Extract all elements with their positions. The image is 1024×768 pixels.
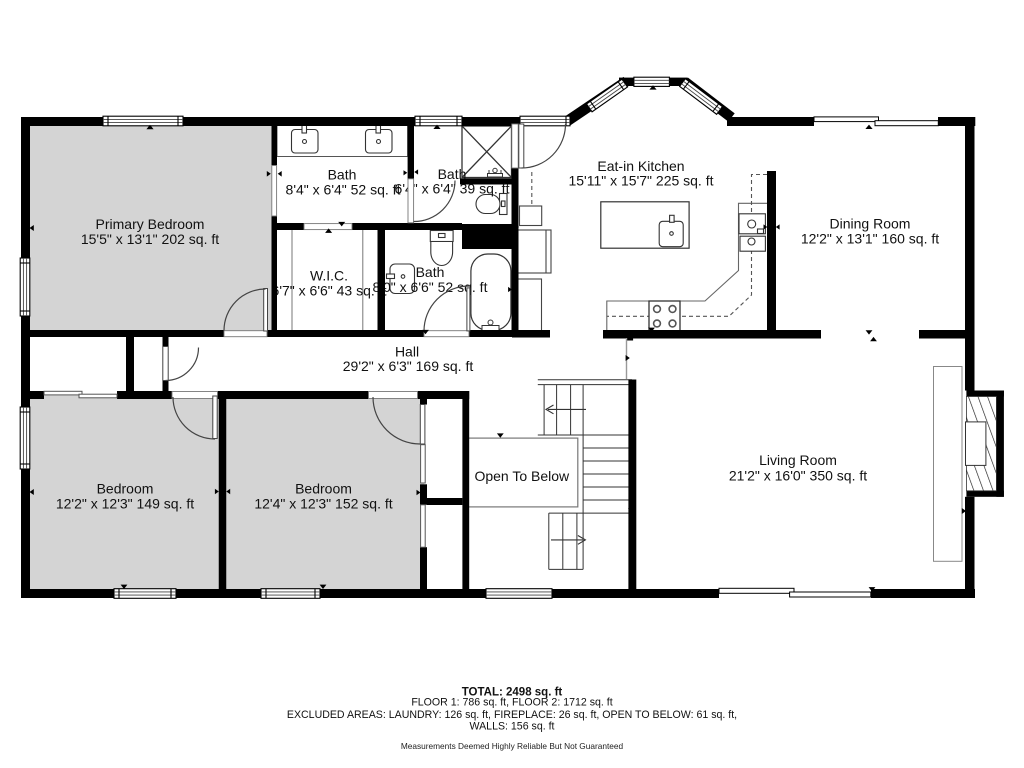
svg-text:6'7" x 6'6" 43 sq. ft: 6'7" x 6'6" 43 sq. ft (272, 283, 387, 299)
svg-text:EXCLUDED AREAS: LAUNDRY: 126 s: EXCLUDED AREAS: LAUNDRY: 126 sq. ft, FIR… (287, 709, 737, 721)
svg-text:Open To Below: Open To Below (474, 468, 570, 484)
svg-text:Dining Room: Dining Room (830, 216, 911, 232)
svg-text:15'5" x 13'1" 202 sq. ft: 15'5" x 13'1" 202 sq. ft (81, 231, 219, 247)
svg-text:Bath: Bath (328, 167, 357, 183)
svg-text:Bedroom: Bedroom (295, 481, 352, 497)
svg-text:29'2" x 6'3" 169 sq. ft: 29'2" x 6'3" 169 sq. ft (343, 358, 474, 374)
svg-text:Bath: Bath (416, 264, 445, 280)
svg-text:15'11" x 15'7" 225 sq. ft: 15'11" x 15'7" 225 sq. ft (568, 173, 713, 189)
svg-text:Measurements Deemed Highly Rel: Measurements Deemed Highly Reliable But … (401, 741, 624, 751)
svg-text:8'4" x 6'4" 52 sq. ft: 8'4" x 6'4" 52 sq. ft (286, 182, 401, 198)
svg-text:W.I.C.: W.I.C. (310, 268, 348, 284)
svg-text:12'4" x 12'3" 152 sq. ft: 12'4" x 12'3" 152 sq. ft (254, 496, 392, 512)
svg-text:Bedroom: Bedroom (97, 481, 154, 497)
svg-text:12'2" x 12'3" 149 sq. ft: 12'2" x 12'3" 149 sq. ft (56, 496, 194, 512)
svg-text:12'2" x 13'1" 160 sq. ft: 12'2" x 13'1" 160 sq. ft (801, 231, 939, 247)
svg-text:21'2" x 16'0" 350 sq. ft: 21'2" x 16'0" 350 sq. ft (729, 468, 867, 484)
svg-text:Living Room: Living Room (759, 452, 837, 468)
svg-text:Primary Bedroom: Primary Bedroom (96, 216, 205, 232)
svg-text:FLOOR 1: 786 sq. ft, FLOOR 2:: FLOOR 1: 786 sq. ft, FLOOR 2: 1712 sq. f… (411, 697, 612, 709)
svg-text:WALLS: 156 sq. ft: WALLS: 156 sq. ft (470, 721, 555, 733)
